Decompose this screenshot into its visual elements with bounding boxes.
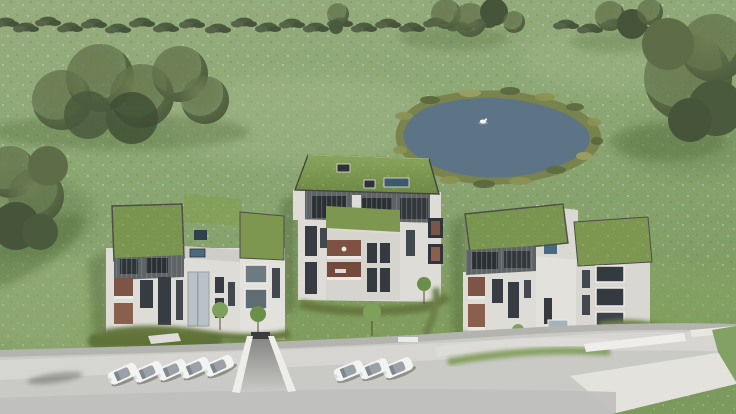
bench: [398, 337, 418, 342]
left-loggia-1: [114, 278, 133, 299]
right-loggia-1: [468, 277, 485, 299]
left-roof-wing: [240, 212, 284, 260]
right-loggia-2: [468, 304, 485, 330]
architectural-render: [0, 0, 736, 414]
scene-canvas: [0, 0, 736, 414]
left-loggia-2: [114, 303, 133, 327]
left-skylight: [190, 249, 205, 257]
tree-cluster-left-edge: [0, 146, 68, 250]
